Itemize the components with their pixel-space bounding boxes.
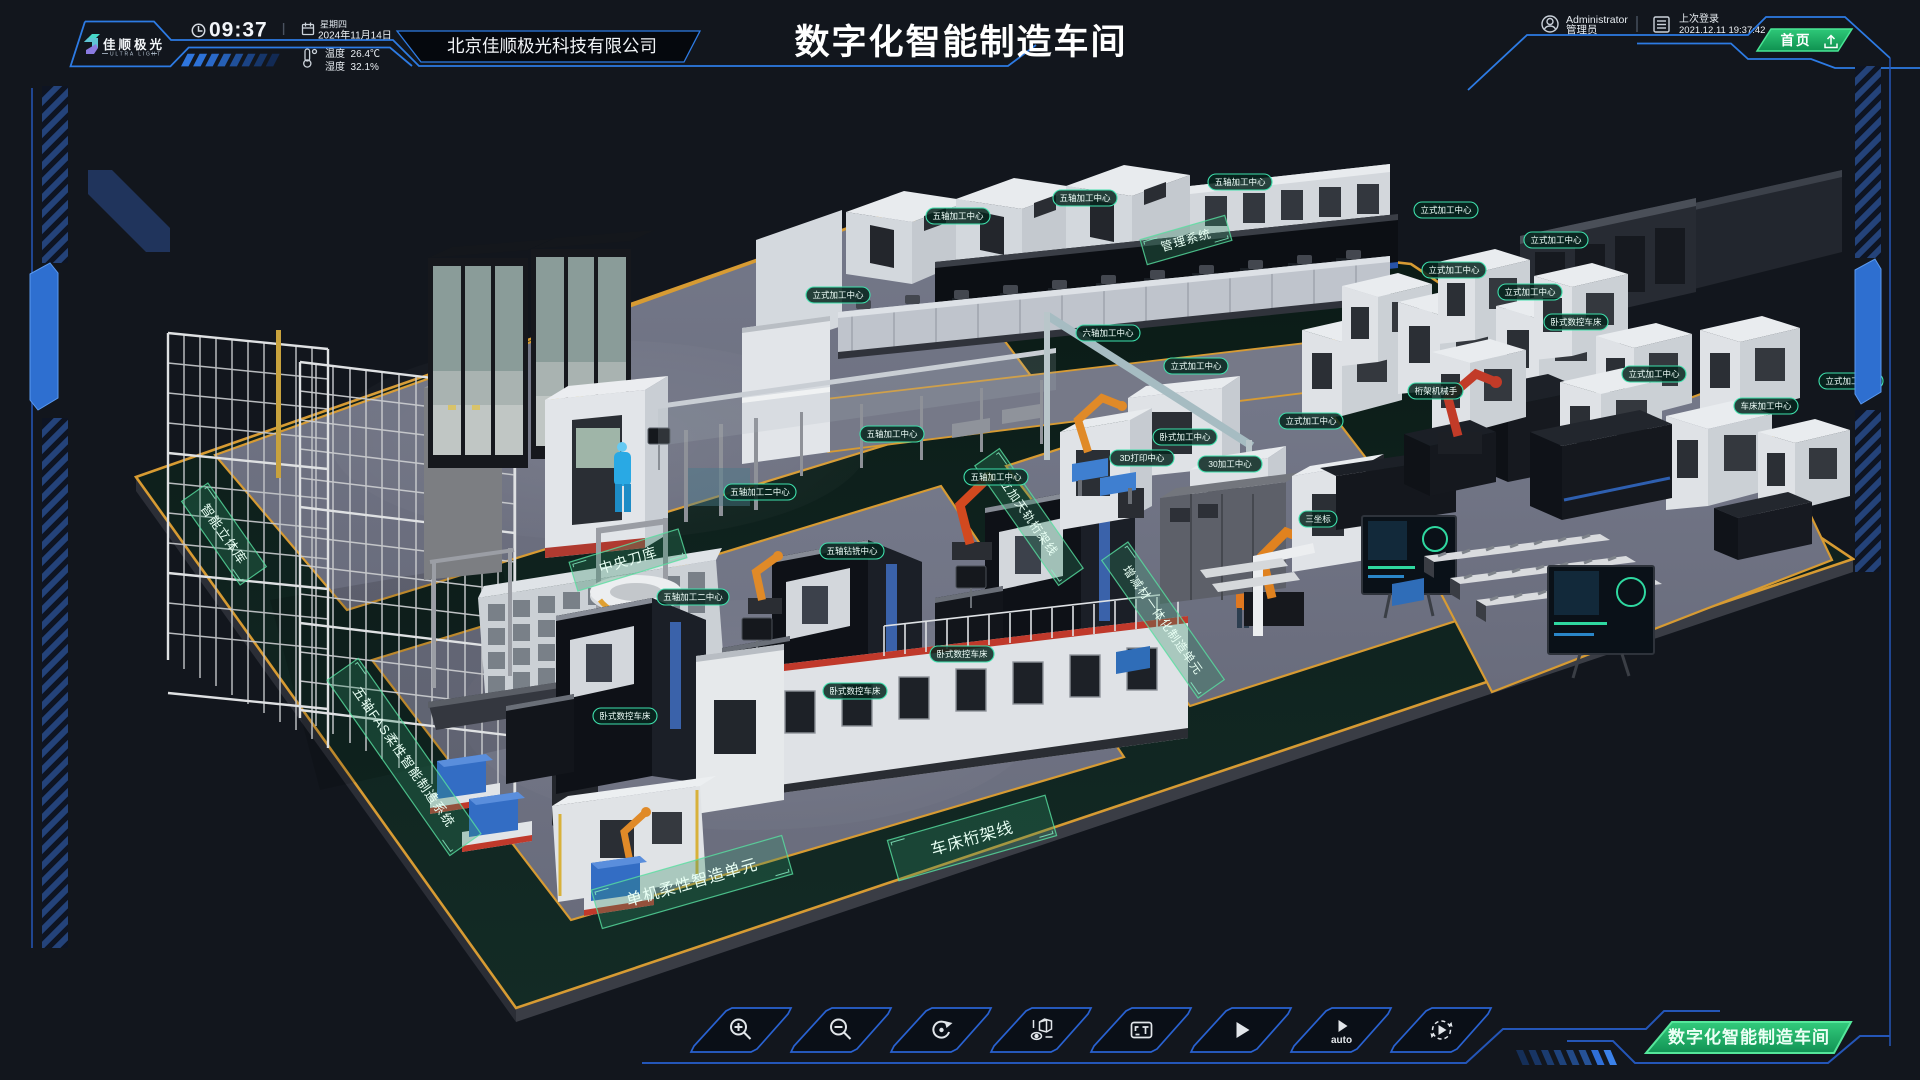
svg-text:佳顺极光: 佳顺极光	[103, 37, 165, 52]
svg-text:立式加工中心: 立式加工中心	[1530, 235, 1582, 245]
svg-text:立式加工中心: 立式加工中心	[1170, 361, 1222, 371]
svg-text:立式加工中心: 立式加工中心	[1285, 416, 1337, 426]
svg-text:湿度 32.1%: 湿度 32.1%	[325, 60, 379, 73]
svg-text:五轴钻铣中心: 五轴钻铣中心	[826, 546, 878, 556]
svg-text:五轴加工中心: 五轴加工中心	[932, 211, 984, 221]
svg-text:卧式加工中心: 卧式加工中心	[1159, 432, 1211, 442]
svg-text:09:37: 09:37	[209, 19, 268, 42]
svg-text:auto: auto	[1331, 1035, 1352, 1046]
svg-text:卧式数控车床: 卧式数控车床	[599, 711, 651, 721]
svg-text:六轴加工中心: 六轴加工中心	[1082, 328, 1134, 338]
svg-text:管理员: 管理员	[1566, 23, 1598, 36]
svg-text:3D打印中心: 3D打印中心	[1120, 453, 1165, 463]
svg-text:2024年11月14日: 2024年11月14日	[318, 29, 392, 42]
svg-text:北京佳顺极光科技有限公司: 北京佳顺极光科技有限公司	[447, 36, 657, 56]
svg-text:三坐标: 三坐标	[1305, 514, 1331, 524]
svg-text:桁架机械手: 桁架机械手	[1415, 386, 1458, 396]
svg-text:卧式数控车床: 卧式数控车床	[1550, 317, 1602, 327]
svg-text:五轴加工中心: 五轴加工中心	[1214, 177, 1266, 187]
svg-text:车床加工中心: 车床加工中心	[1740, 401, 1792, 411]
svg-text:卧式数控车床: 卧式数控车床	[829, 686, 881, 696]
svg-text:立式加工中心: 立式加工中心	[1428, 265, 1480, 275]
svg-text:数字化智能制造车间: 数字化智能制造车间	[1668, 1027, 1830, 1047]
svg-text:五轴加工中心: 五轴加工中心	[970, 472, 1022, 482]
svg-text:立式加工中心: 立式加工中心	[1504, 287, 1556, 297]
svg-text:温度 26.4℃: 温度 26.4℃	[325, 47, 380, 60]
svg-text:卧式数控车床: 卧式数控车床	[936, 649, 988, 659]
svg-text:上次登录: 上次登录	[1679, 12, 1719, 25]
svg-text:立式加工中心: 立式加工中心	[1420, 205, 1472, 215]
svg-text:五轴加工二中心: 五轴加工二中心	[663, 592, 723, 602]
svg-text:首页: 首页	[1781, 32, 1812, 48]
svg-text:立式加工中心: 立式加工中心	[1628, 369, 1680, 379]
svg-text:30加工中心: 30加工中心	[1208, 459, 1252, 469]
svg-text:ULTRA LIGHT: ULTRA LIGHT	[110, 52, 162, 58]
svg-text:五轴加工二中心: 五轴加工二中心	[730, 487, 790, 497]
svg-text:立式加工中心: 立式加工中心	[812, 290, 864, 300]
svg-text:数字化智能制造车间: 数字化智能制造车间	[794, 23, 1127, 62]
svg-text:星期四: 星期四	[320, 20, 347, 30]
svg-text:五轴加工中心: 五轴加工中心	[866, 429, 918, 439]
svg-text:五轴加工中心: 五轴加工中心	[1059, 193, 1111, 203]
